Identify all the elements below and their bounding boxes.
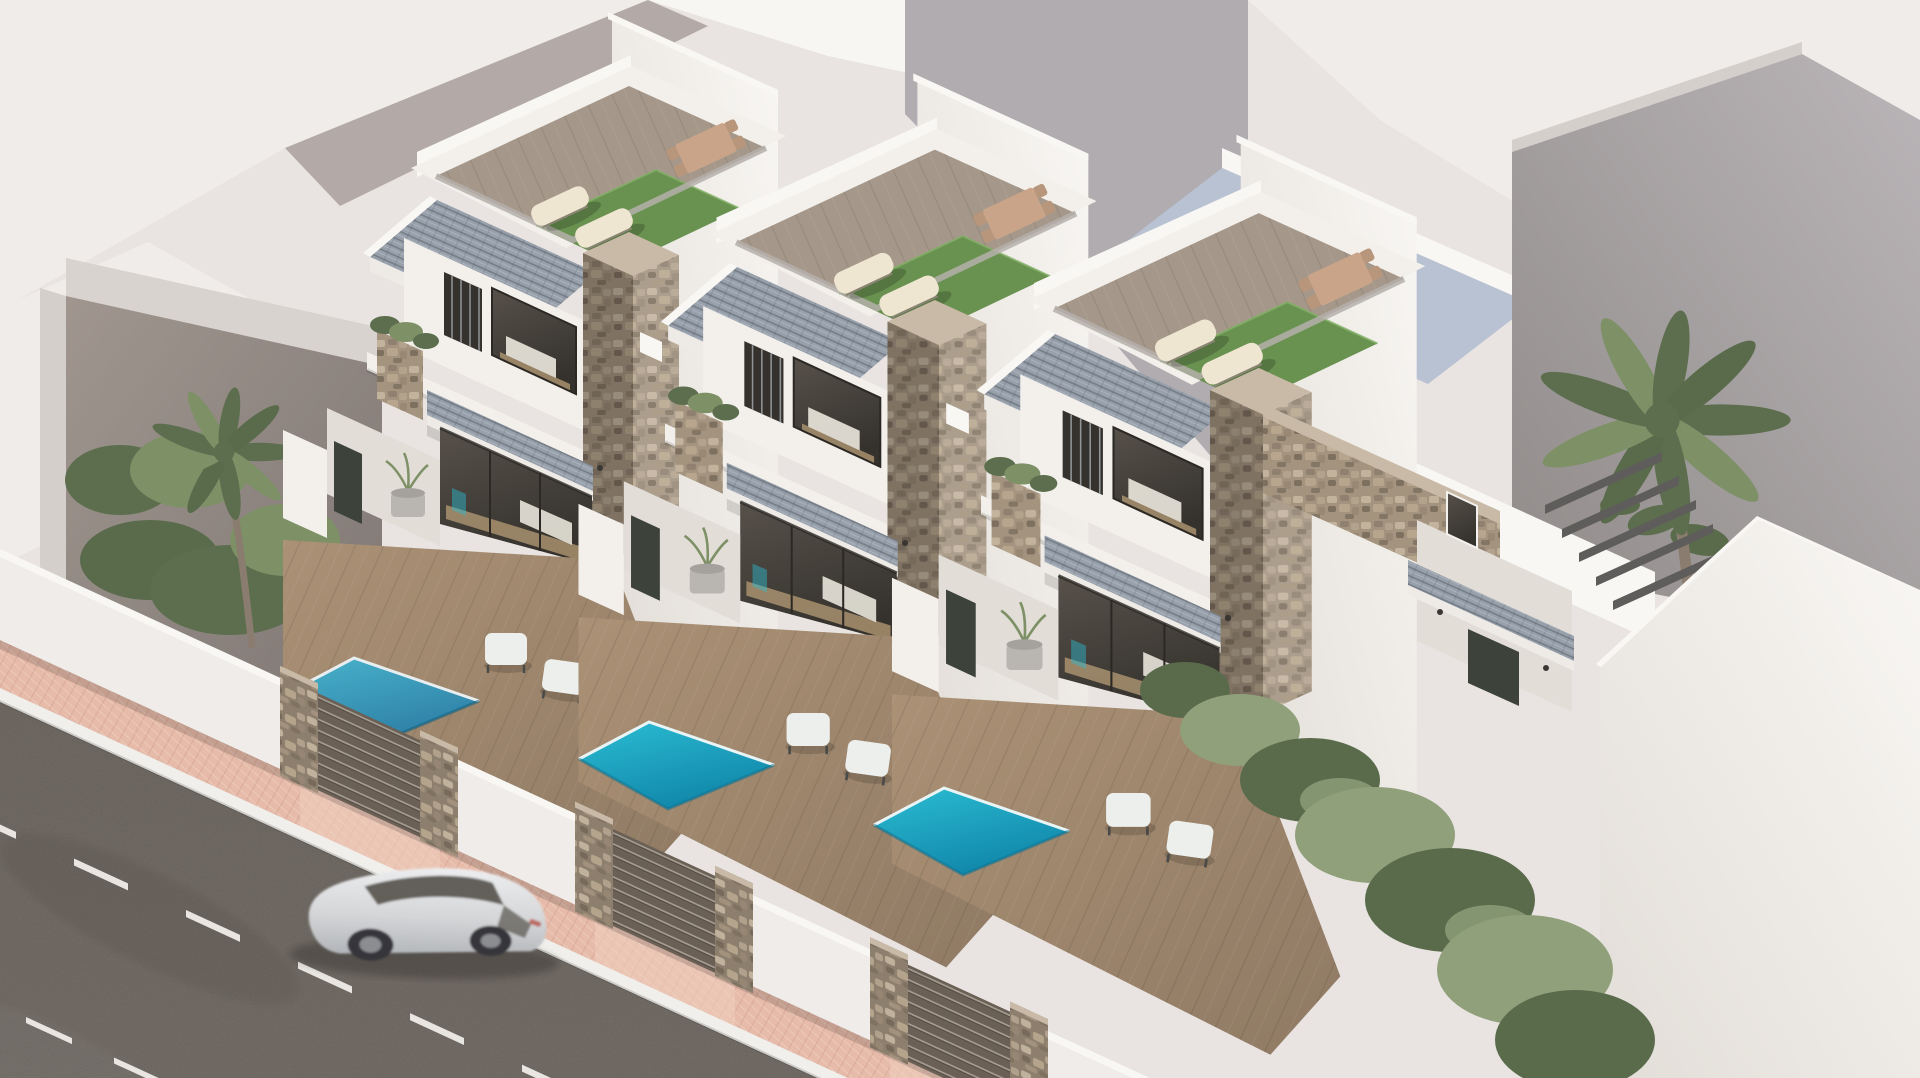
- wall-sconce: [1437, 609, 1443, 615]
- stone-pillar: [420, 730, 458, 857]
- stone-pillar: [870, 937, 908, 1064]
- wall-sconce: [1543, 665, 1549, 671]
- stone-pillar: [575, 802, 613, 929]
- architectural-render: [0, 0, 1920, 1078]
- render-canvas: [0, 0, 1920, 1078]
- stone-pillar: [280, 666, 318, 793]
- stone-pillar: [715, 866, 753, 993]
